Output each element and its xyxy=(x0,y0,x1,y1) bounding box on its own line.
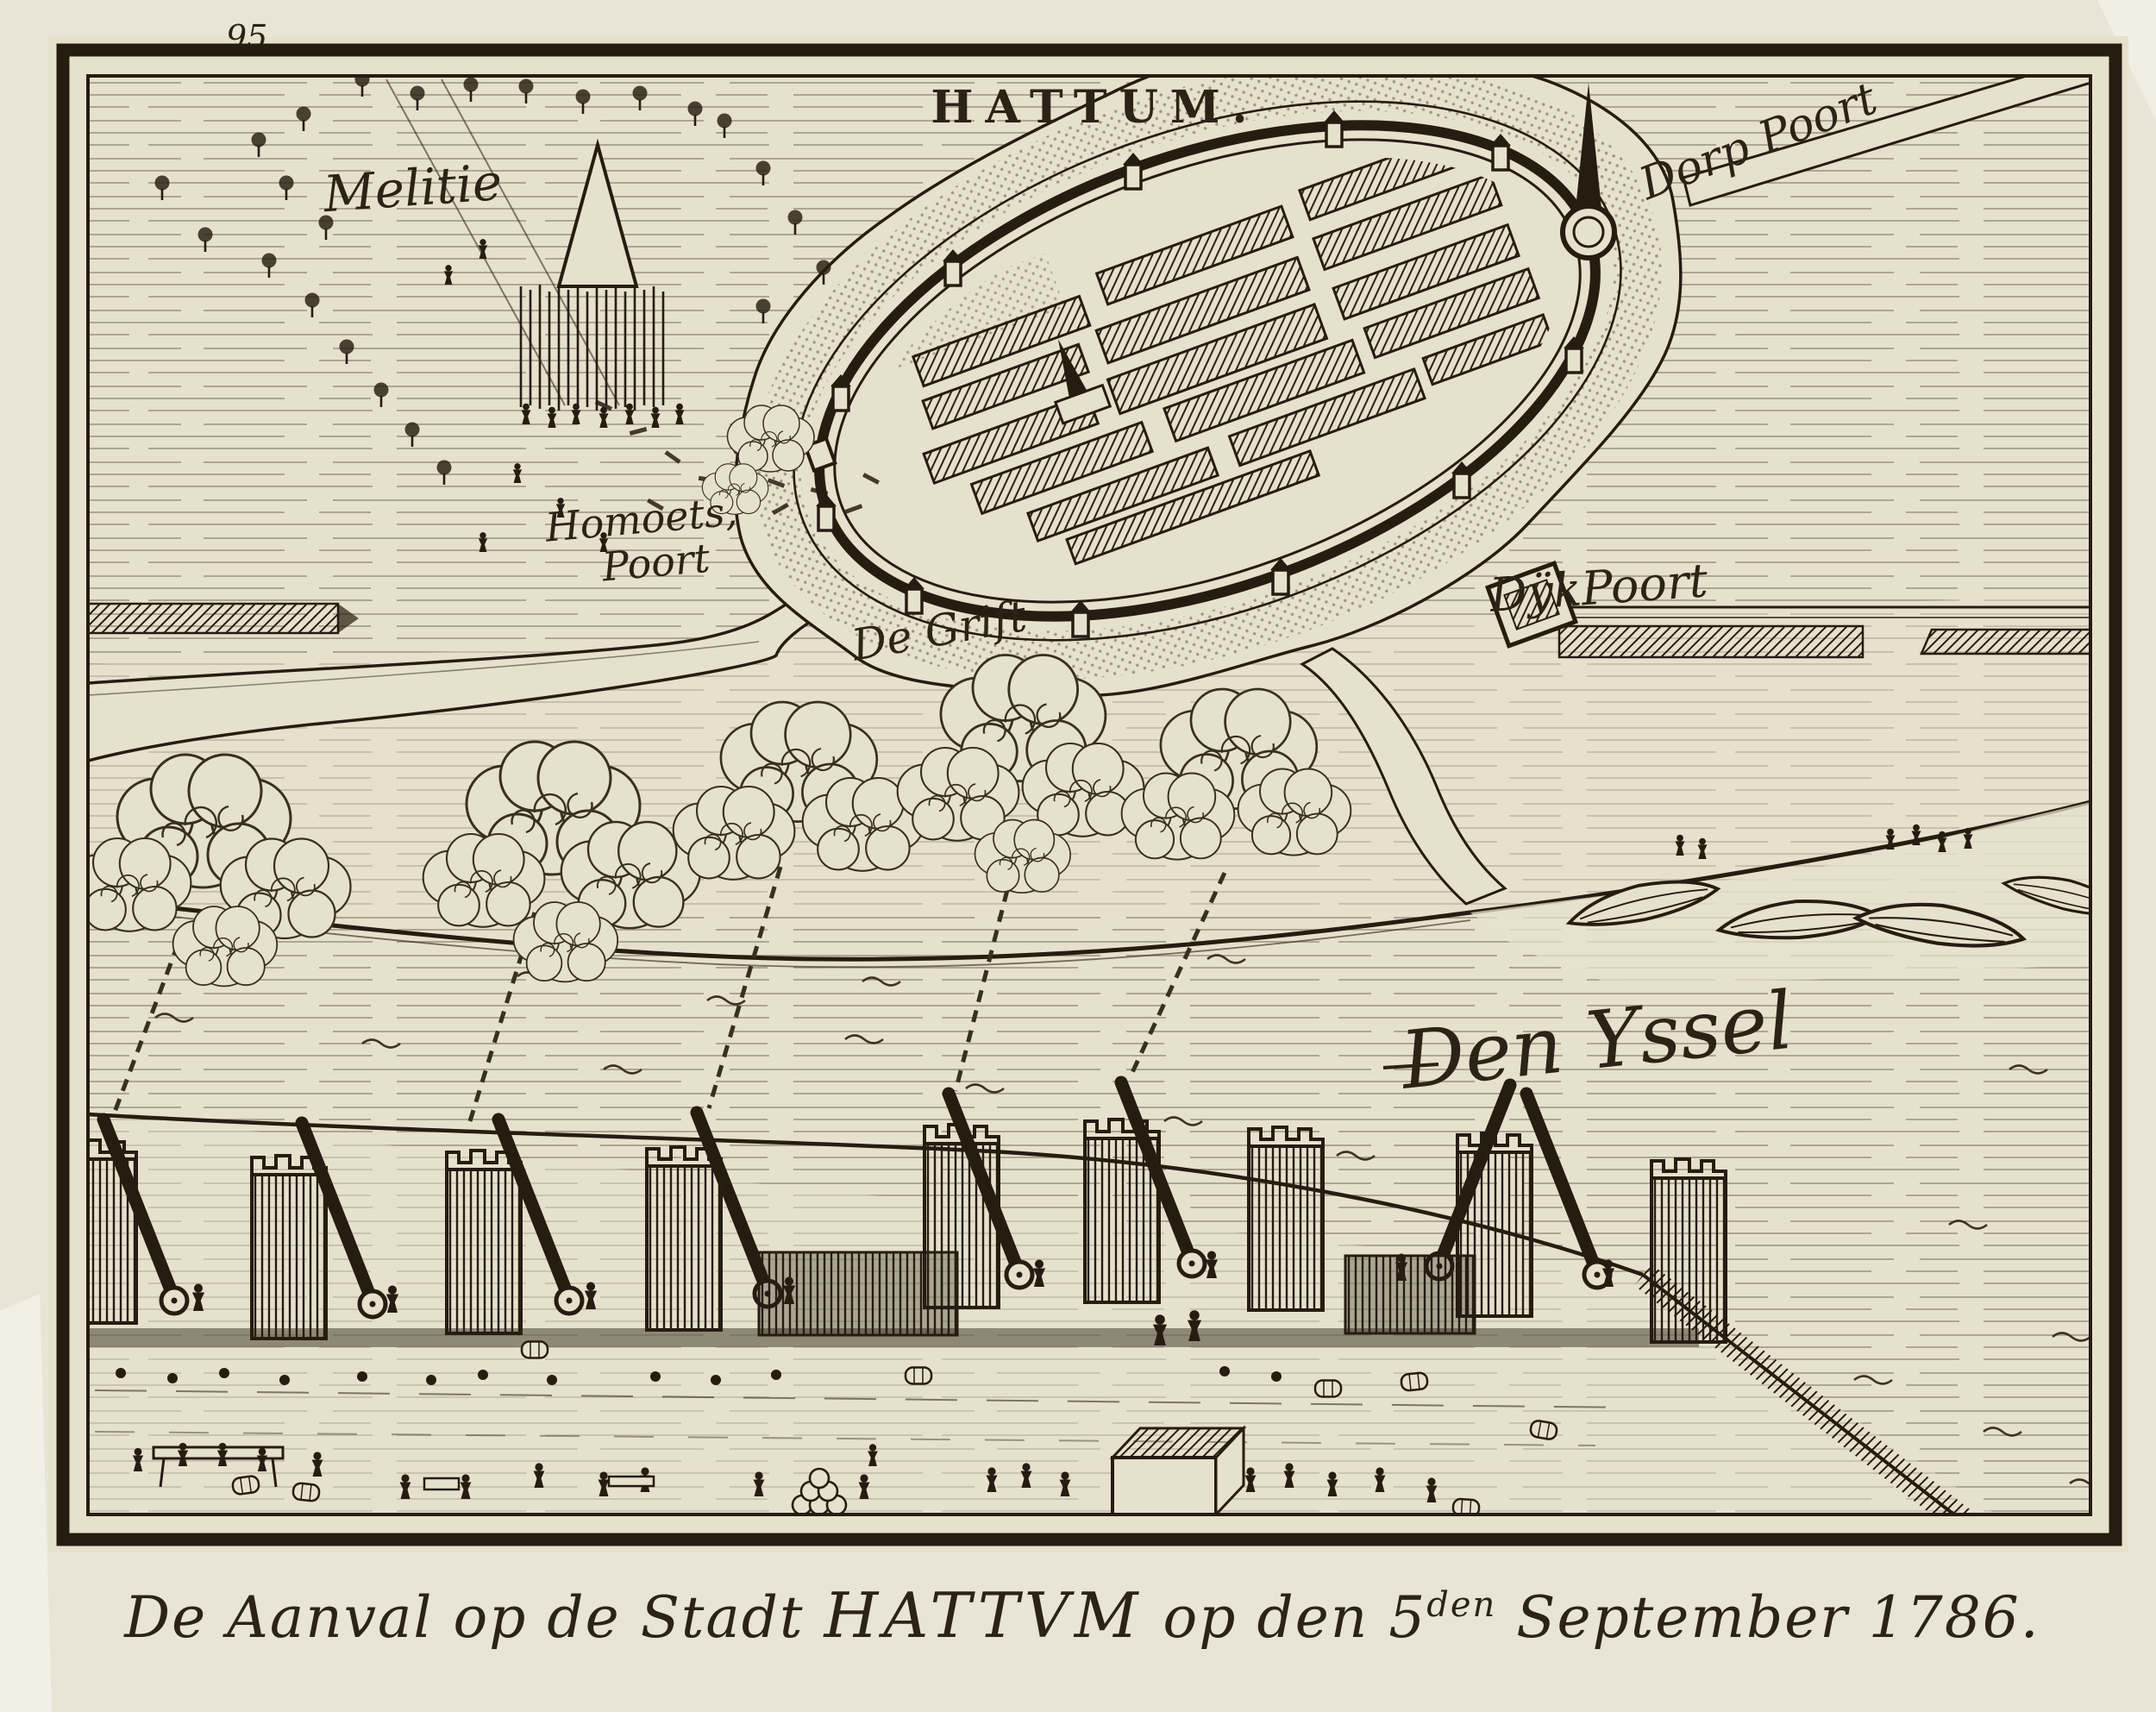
gabion-tower xyxy=(924,1125,999,1308)
powder-chest xyxy=(1112,1428,1244,1514)
gabion-tower xyxy=(1085,1119,1159,1302)
gabion-tower xyxy=(447,1151,521,1333)
caption-prefix: De Aanval op de Stadt xyxy=(123,1584,824,1651)
label-melitie: Melitie xyxy=(321,153,504,223)
label-hattum-title: HATTUM. xyxy=(931,81,1259,134)
gabion-tower xyxy=(647,1147,721,1330)
engraved-scene: HATTUM. Melitie Homoets, Poort Dorp Poor… xyxy=(60,0,2133,1544)
etching-canvas: 95. xyxy=(0,0,2156,1712)
label-homoets-poort-line2: Poort xyxy=(599,535,712,591)
etching-print-page: 95. xyxy=(0,0,2156,1712)
caption-superscript: den xyxy=(1426,1585,1496,1625)
gabion-tower xyxy=(1249,1127,1323,1310)
caption-city: HATTVM xyxy=(823,1579,1144,1652)
gabion-tower xyxy=(1457,1133,1532,1316)
gabion-tower xyxy=(1651,1159,1726,1342)
caption-middle: op den 5 xyxy=(1144,1584,1427,1651)
gabion-tower xyxy=(252,1156,326,1339)
caption-suffix: September 1786. xyxy=(1496,1584,2040,1651)
caption: De Aanval op de Stadt HATTVM op den 5den… xyxy=(123,1579,2040,1652)
